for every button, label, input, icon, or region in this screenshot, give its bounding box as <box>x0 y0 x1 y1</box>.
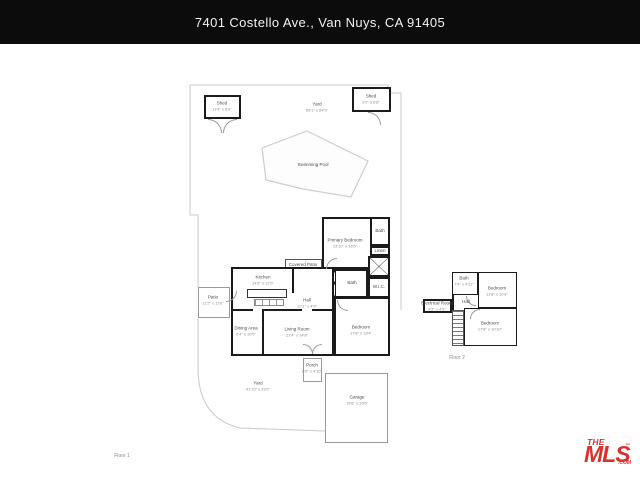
listing-address-title: 7401 Costello Ave., Van Nuys, CA 91405 <box>195 15 445 30</box>
floorplan-page: 7401 Costello Ave., Van Nuys, CA 91405 <box>0 0 640 480</box>
interior-wall <box>292 267 294 293</box>
site-boundary-svg <box>0 0 640 480</box>
floor2-bath-room <box>452 272 478 295</box>
swimming-pool-outline <box>262 131 368 197</box>
floor2-electrical-room <box>423 299 452 313</box>
interior-wall <box>231 309 253 311</box>
yard-bottom-label: Yard 41'10" x 29'2" <box>246 380 270 391</box>
door-swing-arc <box>208 119 222 133</box>
door-swing-arc <box>368 112 381 125</box>
logo-trademark: ™ <box>625 443 630 449</box>
floor2-bedroom-top-room <box>478 272 517 308</box>
interior-wall <box>312 309 334 311</box>
floor1-caption: Floor 1 <box>114 453 130 459</box>
garage-structure <box>325 373 388 443</box>
header-bar: 7401 Costello Ave., Van Nuys, CA 91405 <box>0 0 640 44</box>
kitchen-island <box>247 289 287 298</box>
logo-com-text: .COM <box>618 460 631 466</box>
yard-top-label: Yard 66'1" x 54'9" <box>306 101 328 112</box>
interior-wall <box>262 309 264 356</box>
the-mls-logo: THE MLS ™ .COM <box>584 437 634 471</box>
porch-structure <box>303 358 322 382</box>
kitchen-counter <box>254 299 284 306</box>
walk-in-closet-room <box>368 277 390 298</box>
kitchen-living-block <box>231 267 334 356</box>
floor2-caption: Floor 2 <box>449 355 465 361</box>
void-xbox <box>368 256 390 277</box>
swimming-pool-label: Swimming Pool <box>297 162 328 168</box>
floor2-stairs <box>452 310 464 346</box>
linen-closet-room <box>370 246 390 256</box>
door-swing-arc <box>223 119 237 133</box>
shed-right-room <box>352 87 391 112</box>
shed-left-room <box>204 95 241 119</box>
interior-wall <box>262 309 302 311</box>
primary-bath-room <box>370 217 390 246</box>
